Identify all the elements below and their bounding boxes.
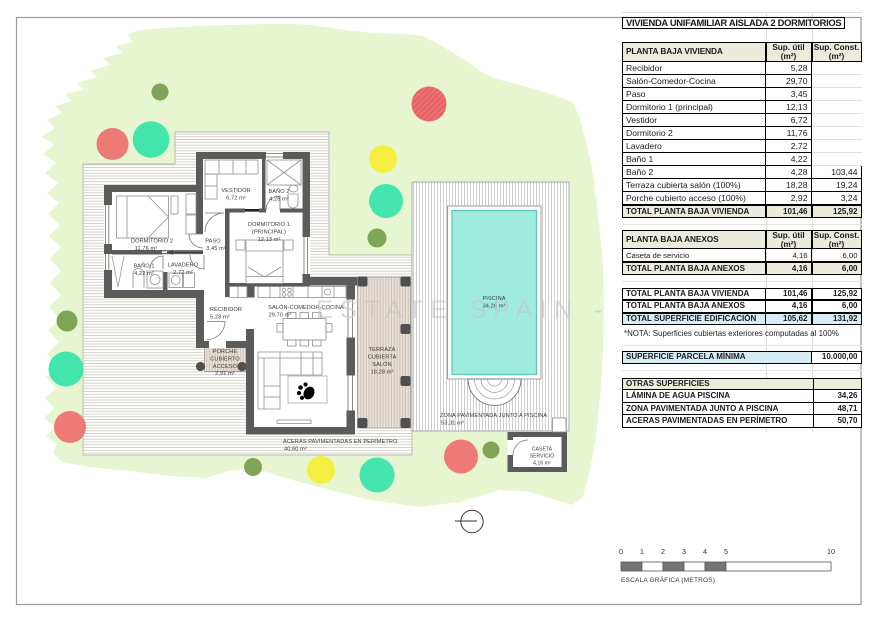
svg-text:DORMITORIO 2: DORMITORIO 2 <box>131 239 173 245</box>
svg-text:CUBIERTO: CUBIERTO <box>210 357 240 363</box>
svg-text:BAÑO 1: BAÑO 1 <box>133 263 154 270</box>
svg-text:10: 10 <box>827 547 835 556</box>
svg-text:18,28 m²: 18,28 m² <box>371 370 394 376</box>
svg-text:3,45 m²: 3,45 m² <box>206 246 226 252</box>
svg-text:ACERAS PAVIMENTADAS EN PERÍMET: ACERAS PAVIMENTADAS EN PERÍMETRO <box>283 438 398 445</box>
svg-text:29,70 m²: 29,70 m² <box>269 313 292 319</box>
svg-text:TERRAZA: TERRAZA <box>369 347 396 353</box>
svg-text:53,31 m²: 53,31 m² <box>441 421 464 427</box>
svg-text:PORCHE: PORCHE <box>213 349 238 355</box>
svg-text:2: 2 <box>661 547 665 556</box>
svg-text:PASO: PASO <box>205 239 221 245</box>
svg-text:(PRINCIPAL): (PRINCIPAL) <box>252 230 286 236</box>
svg-text:LAVADERO: LAVADERO <box>168 263 199 269</box>
svg-text:4,22 m²: 4,22 m² <box>134 271 154 277</box>
svg-text:5: 5 <box>724 547 728 556</box>
svg-text:2,72 m²: 2,72 m² <box>173 270 193 276</box>
svg-text:5,28 m²: 5,28 m² <box>210 315 230 321</box>
svg-text:4: 4 <box>703 547 707 556</box>
svg-text:SALÓN: SALÓN <box>372 361 391 368</box>
svg-text:VESTIDOR: VESTIDOR <box>221 188 250 194</box>
svg-text:11,76 m²: 11,76 m² <box>135 246 157 252</box>
svg-text:SERVICIO: SERVICIO <box>530 454 555 460</box>
svg-text:ESCALA GRÁFICA (METROS): ESCALA GRÁFICA (METROS) <box>621 575 715 584</box>
svg-text:6,72 m²: 6,72 m² <box>226 196 246 202</box>
svg-text:ZONA PAVIMENTADA JUNTO A PISCI: ZONA PAVIMENTADA JUNTO A PISCINA <box>440 413 547 419</box>
svg-text:40,60 m²: 40,60 m² <box>284 447 307 453</box>
svg-text:12,13 m²: 12,13 m² <box>258 237 281 243</box>
svg-text:RECIBIDOR: RECIBIDOR <box>210 307 242 313</box>
svg-text:0: 0 <box>619 547 623 556</box>
svg-text:ESTATE SPAIN -: ESTATE SPAIN - <box>316 296 610 324</box>
svg-text:CASETA: CASETA <box>532 447 553 453</box>
svg-text:2,91 m²: 2,91 m² <box>215 371 235 377</box>
svg-text:BAÑO 2: BAÑO 2 <box>268 188 289 195</box>
svg-text:1: 1 <box>640 547 644 556</box>
svg-text:3: 3 <box>682 547 686 556</box>
svg-text:4,16 m²: 4,16 m² <box>533 461 551 467</box>
svg-text:ACCESO: ACCESO <box>213 364 238 370</box>
svg-text:4,28 m²: 4,28 m² <box>269 197 289 203</box>
svg-text:CUBIERTA: CUBIERTA <box>368 355 397 361</box>
svg-text:DORMITORIO 1: DORMITORIO 1 <box>248 222 290 228</box>
